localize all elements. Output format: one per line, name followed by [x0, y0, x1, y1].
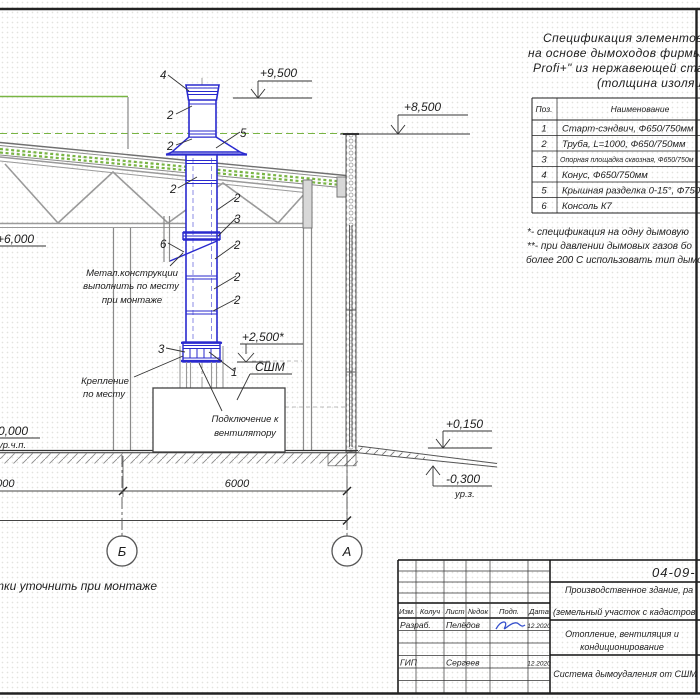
note-metal-3: при монтаже: [102, 295, 162, 306]
tb-project-1: Производственное здание, ра: [565, 585, 693, 595]
dim-6000-left: 6000: [0, 478, 15, 490]
spec-notes: *- спецификация на одну дымовую **- при …: [526, 226, 700, 266]
tb-role-gip: ГИП: [400, 658, 418, 668]
item-label: 2: [233, 272, 241, 284]
note-metal-2: выполнить по месту: [83, 281, 180, 292]
item-label: 4: [160, 70, 166, 82]
tb-date-gip: 12.2020: [527, 661, 551, 668]
title-block: Изм. Колуч Лист №док Подп. Дата Разраб. …: [398, 560, 700, 693]
title-block-header-row: Изм. Колуч Лист №док Подп. Дата: [399, 607, 549, 616]
tb-section-1: Отопление, вентиляция и: [565, 629, 679, 639]
spec-row-num: 2: [540, 139, 547, 150]
spec-note-2: **- при давлении дымовых газов бо: [527, 240, 692, 252]
signature-scribble: [496, 622, 525, 629]
spec-row-num: 6: [541, 201, 547, 212]
elevation-0150: +0,150: [446, 417, 483, 431]
note-podkl-2: вентилятору: [214, 428, 277, 439]
tb-col-podp: Подп.: [499, 607, 519, 616]
spec-note-1: *- спецификация на одну дымовую: [527, 226, 689, 238]
item-label: 1: [231, 367, 237, 379]
tb-project-2: (земельный участок с кадастров: [553, 607, 696, 617]
spec-row-name: Крышная разделка 0-15°, Ф750мм: [562, 186, 700, 197]
note-krep-2: по месту: [83, 389, 126, 400]
tb-col-list: Лист: [444, 607, 464, 616]
spec-table: Поз. Наименование 1 Старт-сэндвич, Ф650/…: [532, 98, 700, 213]
elevation-6000: +6,000: [0, 232, 34, 246]
title-block-rows: Разраб. Пелёдов 12.2020 ГИП Сергеев 12.2…: [400, 620, 551, 668]
elevation-0000-ref: ур.ч.п.: [0, 440, 26, 451]
grid-axes: Б А: [107, 455, 362, 566]
tb-name-gip: Сергеев: [446, 658, 480, 668]
spec-row-name: Консоль К7: [562, 201, 613, 212]
note-podkl-1: Подключение к: [211, 414, 279, 425]
item-label: 2: [233, 193, 241, 205]
item-label: 6: [160, 239, 167, 251]
spec-row-name: Старт-сэндвич, Ф650/750мм: [562, 124, 694, 135]
tb-col-izm: Изм.: [399, 607, 415, 616]
item-label: 3: [158, 344, 165, 356]
note-bottom: тки уточнить при монтаже: [0, 579, 157, 593]
spec-row-num: 1: [541, 124, 546, 135]
item-label: 5: [240, 128, 247, 140]
elevation-2500: +2,500*: [242, 330, 284, 344]
tb-col-ndok: №док: [468, 607, 488, 616]
elevation-m0300: -0,300: [446, 472, 480, 486]
spec-row-num: 3: [541, 155, 547, 166]
dimensions: 6000 6000: [0, 456, 351, 526]
spec-row-num: 4: [541, 170, 546, 181]
spec-title-3: Profi+" из нержавеющей ста: [533, 61, 700, 75]
item-label: 2: [233, 295, 241, 307]
spec-title-2: на основе дымоходов фирмы: [528, 46, 700, 60]
spec-row-name: Труба, L=1000, Ф650/750мм: [562, 139, 686, 150]
sshm-label: СШМ: [255, 360, 285, 374]
note-krep-1: Крепление: [81, 376, 129, 387]
ground-level-ref: ур.з.: [454, 489, 475, 500]
tb-role-razrab: Разраб.: [400, 620, 431, 630]
spec-note-3: более 200 С использовать тип дымо: [526, 254, 700, 266]
item-label: 3: [234, 214, 241, 226]
tb-col-koluch: Колуч: [420, 607, 440, 616]
elevation-0000: 0,000: [0, 424, 28, 438]
spec-col-name: Наименование: [611, 104, 670, 114]
spec-row-name: Опорная площадка сквозная, Ф650/750м: [560, 156, 694, 164]
item-label: 2: [233, 240, 241, 252]
chimney: [153, 78, 285, 452]
spec-row-name: Конус, Ф650/750мм: [562, 170, 648, 181]
tb-sheet-title: Система дымоудаления от СШМ: [553, 669, 697, 679]
spec-title-4: (толщина изоляц: [597, 76, 700, 90]
spec-row-num: 5: [541, 186, 547, 197]
tb-doc-number: 04-09-: [652, 565, 696, 580]
spec-col-pos: Поз.: [535, 104, 552, 114]
item-label: 2: [166, 110, 174, 122]
note-metal-1: Метал.конструкции: [86, 268, 179, 279]
drawing-sheet: 6000 6000 Б А: [0, 0, 700, 700]
elevation-8500: +8,500: [404, 100, 441, 114]
spec-title-1: Спецификация элементов си: [543, 31, 700, 45]
tb-col-data: Дата: [528, 607, 549, 616]
dim-6000-mid: 6000: [225, 478, 250, 490]
item-label: 2: [166, 141, 174, 153]
tb-name-razrab: Пелёдов: [446, 620, 481, 630]
spec-header: Спецификация элементов си на основе дымо…: [528, 31, 700, 90]
axis-label-a: А: [342, 544, 352, 559]
axis-label-b: Б: [118, 544, 127, 559]
spec-rows: 1 Старт-сэндвич, Ф650/750мм 2 Труба, L=1…: [540, 124, 700, 213]
elevation-9500: +9,500: [260, 66, 297, 80]
tb-section-2: кондиционирование: [580, 642, 664, 652]
item-label: 2: [169, 184, 177, 196]
tb-date-razrab: 12.2020: [527, 623, 551, 630]
